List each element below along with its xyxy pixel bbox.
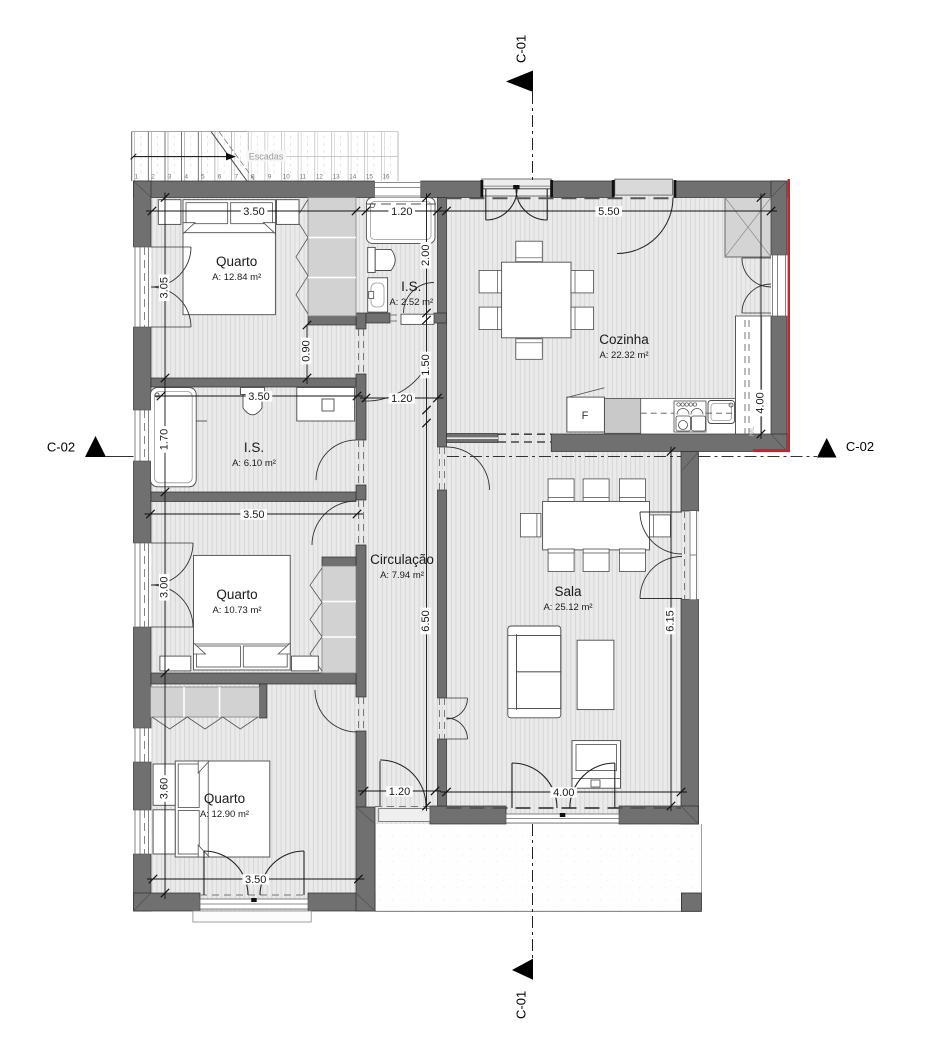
svg-text:1.50: 1.50 [420, 354, 432, 375]
svg-text:C-01: C-01 [514, 35, 529, 63]
svg-text:4.00: 4.00 [553, 787, 574, 799]
svg-text:6.15: 6.15 [665, 610, 677, 631]
svg-text:1: 1 [135, 174, 139, 181]
svg-text:A: 25.12 m²: A: 25.12 m² [543, 602, 592, 613]
svg-text:1.70: 1.70 [159, 429, 171, 450]
svg-text:3.00: 3.00 [158, 577, 170, 598]
svg-text:13: 13 [333, 174, 341, 181]
svg-text:3.50: 3.50 [243, 206, 264, 218]
svg-text:12: 12 [316, 174, 324, 181]
svg-text:5: 5 [201, 174, 205, 181]
svg-text:Sala: Sala [554, 584, 582, 599]
svg-text:6: 6 [218, 174, 222, 181]
svg-text:Quarto: Quarto [204, 791, 245, 806]
svg-text:1.20: 1.20 [391, 206, 412, 218]
svg-text:5.50: 5.50 [598, 206, 619, 218]
svg-text:4.00: 4.00 [755, 392, 767, 413]
svg-text:ML: ML [747, 426, 756, 436]
svg-text:3.50: 3.50 [243, 509, 264, 521]
svg-text:0.90: 0.90 [301, 340, 313, 361]
svg-text:I.S.: I.S. [401, 279, 421, 294]
svg-text:2.00: 2.00 [420, 245, 432, 266]
svg-text:A: 22.32 m²: A: 22.32 m² [599, 350, 648, 361]
svg-text:C-02: C-02 [47, 440, 75, 455]
svg-text:14: 14 [349, 174, 357, 181]
svg-text:1.20: 1.20 [389, 786, 410, 798]
svg-text:Quarto: Quarto [216, 254, 257, 269]
svg-text:Escadas: Escadas [249, 151, 284, 161]
svg-text:3.05: 3.05 [159, 277, 171, 298]
svg-text:3.60: 3.60 [159, 778, 171, 799]
svg-text:A: 12.90 m²: A: 12.90 m² [200, 809, 249, 820]
svg-text:Quarto: Quarto [216, 587, 257, 602]
svg-text:3.50: 3.50 [248, 391, 269, 403]
svg-text:A: 10.73 m²: A: 10.73 m² [212, 605, 261, 616]
svg-text:A: 2.52 m²: A: 2.52 m² [389, 297, 433, 308]
svg-text:Cozinha: Cozinha [599, 332, 649, 347]
svg-text:6.50: 6.50 [420, 610, 432, 631]
svg-text:1.20: 1.20 [391, 393, 412, 405]
svg-text:9: 9 [268, 174, 272, 181]
svg-text:7: 7 [234, 174, 238, 181]
svg-text:2: 2 [151, 174, 155, 181]
svg-text:16: 16 [382, 174, 390, 181]
svg-text:F: F [582, 410, 589, 422]
svg-text:A: 12.84 m²: A: 12.84 m² [212, 272, 261, 283]
svg-text:15: 15 [366, 174, 374, 181]
svg-text:A: 7.94 m²: A: 7.94 m² [380, 570, 424, 581]
svg-text:4: 4 [185, 174, 189, 181]
svg-text:C-01: C-01 [514, 991, 529, 1019]
svg-text:I.S.: I.S. [244, 440, 264, 455]
svg-text:A: 6.10 m²: A: 6.10 m² [232, 458, 276, 469]
svg-text:C-02: C-02 [846, 439, 874, 454]
svg-text:3: 3 [168, 174, 172, 181]
svg-text:Circulação: Circulação [370, 552, 434, 567]
svg-text:11: 11 [300, 174, 307, 181]
svg-text:10: 10 [283, 174, 291, 181]
svg-text:3.50: 3.50 [245, 874, 266, 886]
